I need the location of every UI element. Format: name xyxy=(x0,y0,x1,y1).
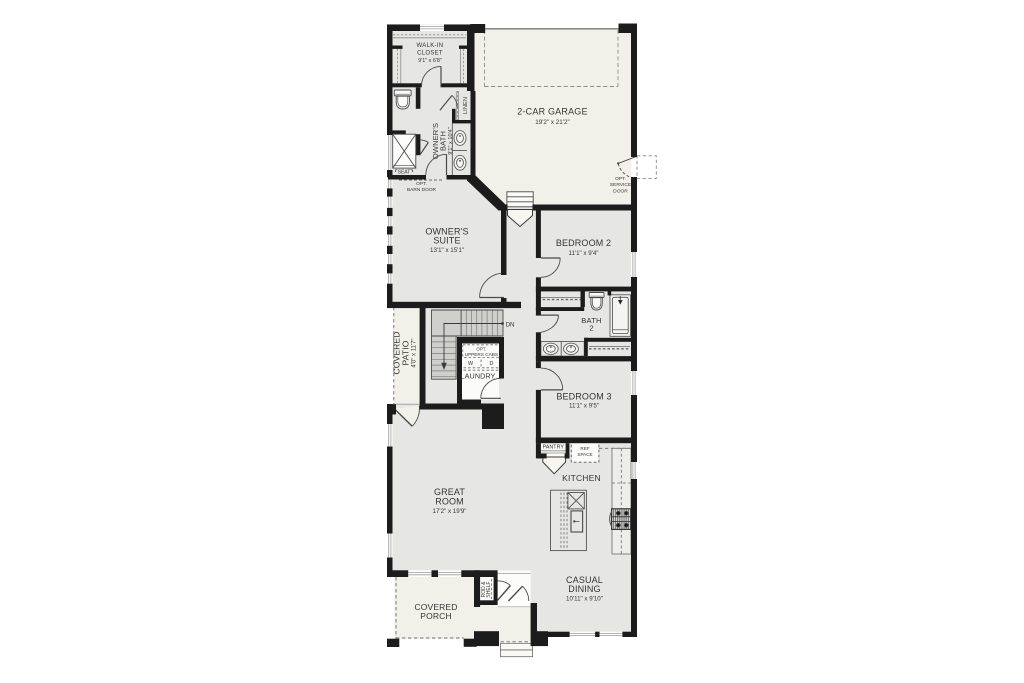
svg-text:OPT.: OPT. xyxy=(476,347,486,352)
svg-text:D: D xyxy=(490,361,494,367)
svg-text:11'1" x 9'5": 11'1" x 9'5" xyxy=(569,403,599,410)
svg-text:LINEN: LINEN xyxy=(463,97,469,114)
svg-text:DN: DN xyxy=(506,321,515,328)
svg-text:SPACE: SPACE xyxy=(577,452,592,457)
svg-text:ROOM: ROOM xyxy=(435,496,464,506)
svg-text:PANTRY: PANTRY xyxy=(543,444,565,450)
svg-text:BARN DOOR: BARN DOOR xyxy=(407,187,437,193)
svg-text:DINING: DINING xyxy=(568,584,600,594)
svg-text:REF: REF xyxy=(580,446,589,451)
svg-text:OPT.: OPT. xyxy=(416,181,427,187)
svg-text:KITCHEN: KITCHEN xyxy=(562,473,601,483)
svg-text:CLOSET: CLOSET xyxy=(417,50,443,56)
svg-text:10'11" x 9'10": 10'11" x 9'10" xyxy=(566,595,603,602)
svg-text:2-CAR GARAGE: 2-CAR GARAGE xyxy=(517,107,587,117)
svg-text:4'0" x 11'7": 4'0" x 11'7" xyxy=(412,338,418,367)
svg-text:DOOR: DOOR xyxy=(613,188,628,194)
svg-text:9'1" x 10'4": 9'1" x 10'4" xyxy=(448,127,454,155)
svg-text:GREAT: GREAT xyxy=(434,487,465,497)
svg-text:BEDROOM 2: BEDROOM 2 xyxy=(556,238,611,248)
svg-text:9'1" x 6'8": 9'1" x 6'8" xyxy=(418,58,442,64)
svg-text:LAUNDRY: LAUNDRY xyxy=(461,371,496,380)
svg-text:SHELF: SHELF xyxy=(486,581,492,597)
svg-text:BATH: BATH xyxy=(438,131,447,151)
svg-text:UPPERS CABS: UPPERS CABS xyxy=(465,352,498,357)
svg-text:11'1" x 9'4": 11'1" x 9'4" xyxy=(568,250,598,257)
svg-text:WALK-IN: WALK-IN xyxy=(417,43,444,49)
svg-text:PATIO: PATIO xyxy=(400,340,410,365)
svg-text:PORCH: PORCH xyxy=(420,611,451,621)
svg-text:SEAT: SEAT xyxy=(398,170,411,176)
svg-text:SUITE: SUITE xyxy=(433,236,460,246)
svg-text:17'2" x 19'9": 17'2" x 19'9" xyxy=(433,508,467,515)
svg-text:13'1" x 15'1": 13'1" x 15'1" xyxy=(430,247,464,254)
svg-text:BEDROOM 3: BEDROOM 3 xyxy=(556,392,611,402)
svg-text:2: 2 xyxy=(589,323,593,332)
svg-text:SERVICE: SERVICE xyxy=(610,182,632,188)
svg-text:OPT.: OPT. xyxy=(615,176,626,182)
svg-text:19'2" x 21'2": 19'2" x 21'2" xyxy=(535,119,570,126)
